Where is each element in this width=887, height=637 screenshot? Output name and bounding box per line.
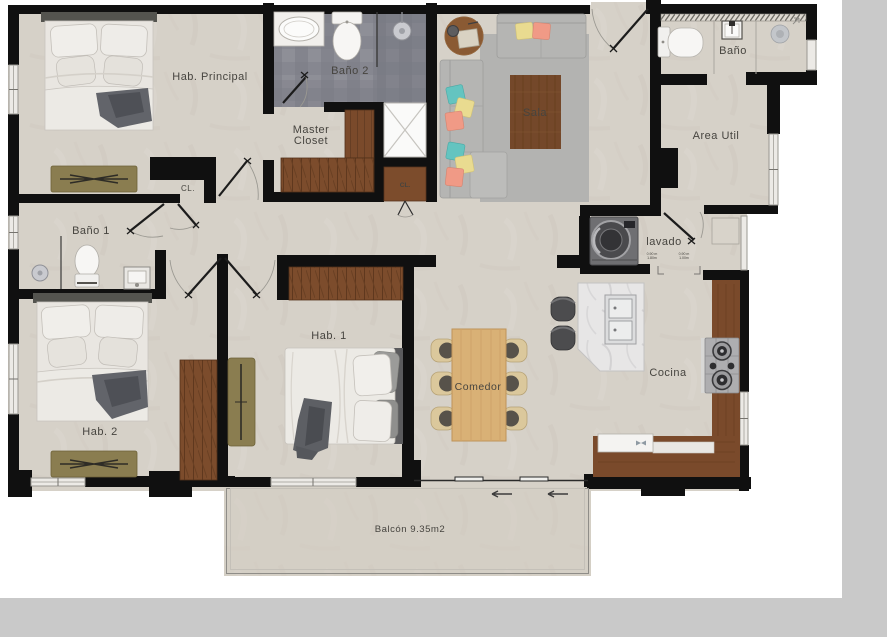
svg-text:Area Util: Area Util: [693, 130, 740, 142]
svg-text:Closet: Closet: [294, 135, 328, 147]
svg-text:Sala: Sala: [523, 107, 547, 119]
svg-text:lavado: lavado: [646, 236, 681, 248]
svg-text:Baño 1: Baño 1: [72, 225, 110, 237]
svg-text:Comedor: Comedor: [455, 381, 502, 393]
svg-text:Cocina: Cocina: [649, 367, 687, 379]
svg-text:1.80m: 1.80m: [647, 256, 657, 260]
svg-text:Balcón 9.35m2: Balcón 9.35m2: [375, 524, 446, 535]
svg-text:Hab. Principal: Hab. Principal: [172, 71, 247, 83]
svg-text:CL.: CL.: [400, 182, 411, 189]
svg-text:Hab. 2: Hab. 2: [82, 426, 117, 438]
svg-text:Baño 2: Baño 2: [331, 65, 369, 77]
svg-text:Hab. 1: Hab. 1: [311, 330, 346, 342]
svg-text:1.00m: 1.00m: [679, 256, 689, 260]
svg-text:CL.: CL.: [181, 184, 195, 193]
svg-text:Baño: Baño: [719, 45, 747, 57]
